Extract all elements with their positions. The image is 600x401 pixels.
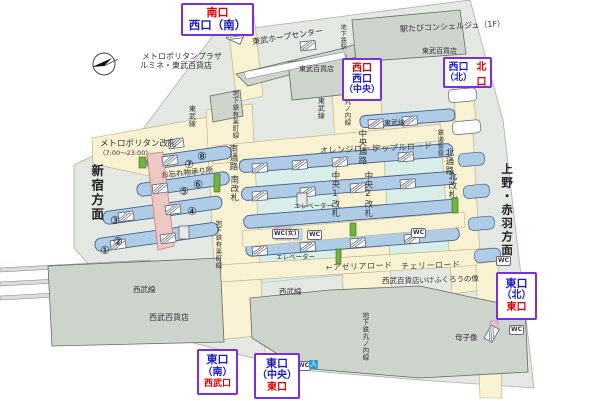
label-boshizo-statue: 母子像 (455, 334, 478, 342)
label-central-gate-1: 中央1改札 (330, 171, 339, 218)
exit-nishi-chuo-line1: 西口 (352, 63, 372, 74)
exit-higashi-kita-line3: 東口 (507, 302, 527, 314)
platform-number-3: ③ (110, 215, 120, 226)
exit-higashi-kita-line1: 東口 (506, 278, 528, 291)
label-south-passage: 南通路 (228, 144, 237, 171)
label-tobu-dept-right: 東武百貨店 (422, 48, 457, 55)
platform-number-6: ⑥ (193, 179, 203, 190)
exit-higashi-chuo-line2: （中央） (257, 370, 297, 382)
label-metropolitan-gate: メトロポリタン改札 (100, 140, 177, 149)
label-railway-police: 鉄道警察 (436, 129, 443, 157)
exit-higashi-minami-line1: 東口 (207, 354, 229, 367)
label-seibu-dept-right: 西武百貨店 (382, 277, 420, 285)
platform-number-7: ⑦ (184, 159, 194, 170)
exit-box-nishiguchi-kita: 西口 （北） 北口 (443, 57, 492, 88)
exit-minami-line2: 西口（南） (189, 19, 247, 32)
exit-higashi-kita-line2: （北） (502, 290, 532, 302)
wc-label-east-north: WC (496, 256, 511, 266)
label-tobu-dept-top: 東武百貨店 (299, 66, 334, 73)
exit-nishi-kita-left: 西口 （北） (445, 62, 472, 83)
wc-label-east: WC (509, 325, 524, 335)
exit-box-higashiguchi-kita: 東口 （北） 東口 (496, 272, 537, 320)
wc-label-central: WC (307, 230, 322, 240)
label-subway-station: 地下鉄駅 (339, 24, 345, 50)
exit-nishi-kita-line1: 西口 (445, 62, 472, 73)
exit-box-higashiguchi-chuo: 東口 （中央） 東口 (254, 353, 300, 399)
label-lumine-tobu: ルミネ・東武百貨店 (140, 62, 212, 70)
label-marunouchi-line-south: 地下鉄丸ノ内線 (361, 312, 368, 361)
exit-nishi-kita-line2: （北） (445, 73, 472, 83)
label-tobu-line-right: 東武線 (384, 120, 405, 127)
label-seibu-dept-left: 西武百貨店 (149, 314, 189, 322)
label-north-gate: 北改札 (447, 172, 456, 199)
accessible-icon: 人 (309, 360, 318, 369)
label-tobu-line-center: 東武線 (317, 97, 324, 120)
label-seibu-line-left: 西武線 (133, 286, 156, 294)
label-yurakucho-line-top: 地下鉄有楽町線 (231, 90, 238, 139)
label-tobu-line-left: 東武線 (188, 105, 195, 128)
platform-number-4: ④ (187, 206, 197, 217)
exit-higashi-minami-line3: 西武口 (204, 379, 231, 390)
wc-women-label: WC(女) (272, 229, 299, 239)
platform-number-8: ⑧ (197, 151, 207, 162)
exit-higashi-chuo-line3: 東口 (267, 382, 287, 394)
label-metropolitan-hours: （7:00～23:00） (99, 150, 152, 157)
platform-number-2: ② (113, 236, 123, 247)
exit-nishi-chuo-line2: 西口 (352, 74, 372, 85)
compass-icon (92, 53, 118, 75)
platform-number-1: ① (100, 245, 110, 256)
exit-box-higashiguchi-minami: 東口 （南） 西武口 (197, 349, 238, 395)
exit-box-minamiguchi: 南口 西口（南） (181, 3, 254, 36)
label-yurakucho-line-south: 地下鉄有楽町線 (214, 220, 221, 269)
label-seibu-line-right: 西武線 (279, 288, 302, 296)
label-direction-ueno-akabane: 上野・赤羽方面 (501, 163, 513, 258)
station-map: メトロポリタンプラザ ルミネ・東武百貨店 東武ホープセンター 駅たびコンシェルジ… (0, 0, 600, 401)
label-north-passage: 北通路 (444, 148, 453, 175)
platform-number-5: ⑤ (179, 186, 189, 197)
wc-label-north: WC (411, 228, 426, 238)
exit-higashi-minami-line2: （南） (203, 367, 233, 379)
label-marunouchi-line-center: 丸ノ内線 (343, 98, 350, 126)
exit-box-nishiguchi-chuo: 西口 西口 （中央） (342, 58, 382, 101)
exit-nishi-chuo-line3: （中央） (344, 85, 380, 96)
label-direction-shinjuku: 新宿方面 (90, 164, 103, 222)
label-elevator-1: エレベーター (294, 203, 333, 210)
label-south-gate: 南改札 (229, 175, 238, 202)
label-elevator-2: エレベーター (276, 254, 315, 261)
label-central-gate-2: 中央2改札 (363, 171, 372, 218)
exit-nishi-kita-right: 北口 (473, 58, 490, 88)
exit-higashi-chuo-line1: 東口 (266, 358, 288, 371)
